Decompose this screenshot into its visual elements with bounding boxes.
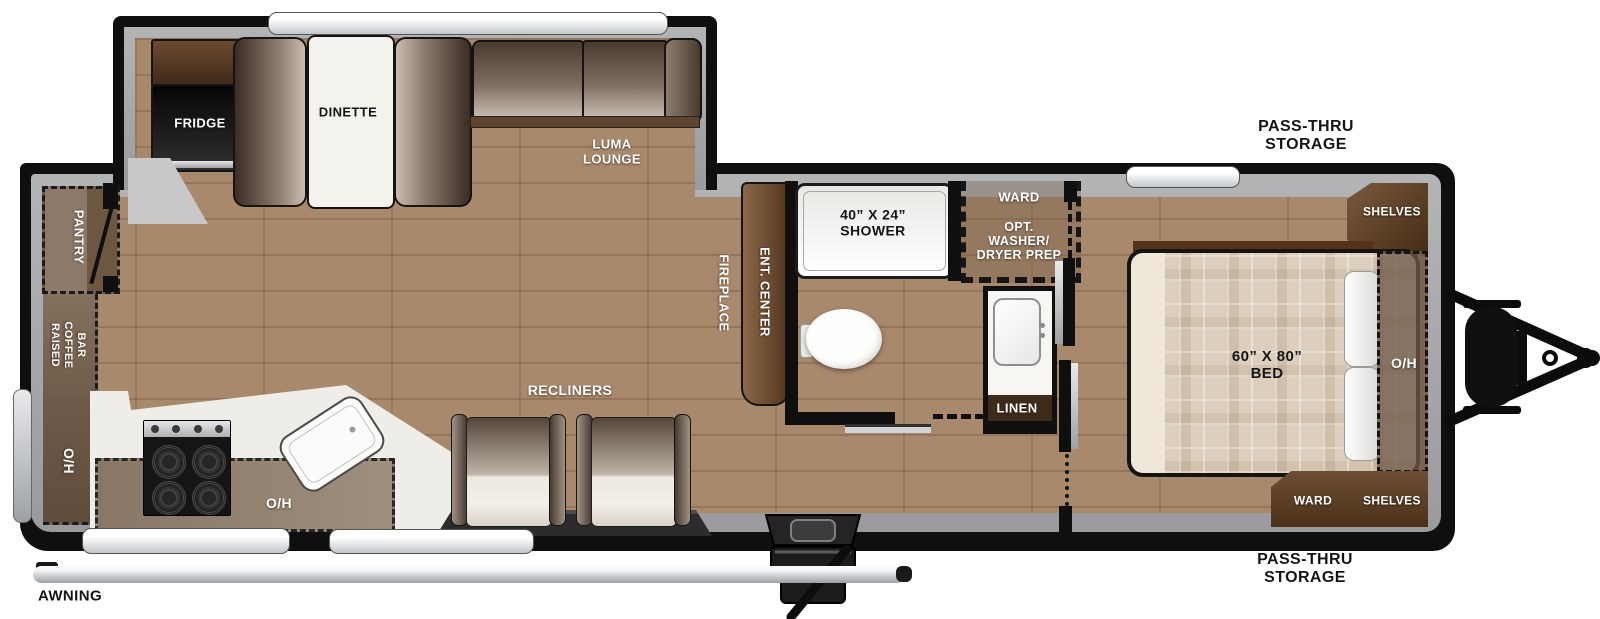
recliner-seat [466, 417, 552, 527]
pass-thru-storage-label-bottom: PASS-THRU STORAGE [1257, 551, 1353, 587]
bedroom-wall-stub-top [1064, 181, 1077, 202]
rear-wall-window [13, 389, 32, 523]
shower-right-wall [948, 181, 961, 281]
awning-end-nub [896, 566, 912, 582]
trailer-hitch [1444, 233, 1600, 485]
recliner-seat [591, 417, 677, 527]
awning-label: AWNING [38, 589, 102, 606]
faucet-icon [1040, 333, 1045, 338]
recliner-right-arm [674, 414, 691, 526]
pantry-label: PANTRY [71, 210, 86, 264]
pass-thru-top-line1: PASS-THRU [1258, 118, 1354, 136]
luma-lounge-armrest [664, 38, 702, 124]
linen-label: LINEN [997, 402, 1038, 417]
luma-lounge-label-line1: LUMA [583, 137, 641, 152]
dinette-bench-right [394, 37, 472, 207]
luma-lounge-label-line2: LOUNGE [583, 152, 641, 167]
awning-roller [33, 566, 905, 583]
vanity-base-wall [983, 426, 1057, 434]
washer-dryer-label-line2: WASHER/ [977, 234, 1062, 248]
overhead-kitchen-label: O/H [266, 496, 292, 512]
shelves-rear-label: SHELVES [1363, 494, 1421, 507]
washer-dryer-label-line3: DRYER PREP [977, 248, 1062, 262]
stove-burner [152, 445, 186, 479]
stove [143, 420, 231, 516]
faucet-icon [1040, 323, 1045, 328]
bed-size-label: 60” X 80” [1232, 349, 1302, 366]
recliner-right-arm [549, 414, 566, 526]
raised-coffee-bar-word2: COFFEE [62, 321, 74, 368]
bedroom-wall-dashed [1068, 202, 1072, 258]
pass-thru-bottom-line2: STORAGE [1257, 569, 1353, 587]
fireplace-label: FIREPLACE [716, 254, 731, 331]
luma-lounge-base [470, 116, 700, 128]
ward-rear-label: WARD [1294, 494, 1332, 507]
dinette-bench-left [233, 37, 307, 207]
raised-coffee-bar-word3: BAR [75, 332, 87, 357]
pantry-door-jamb-top [103, 183, 118, 209]
bathroom-door-dashes [933, 414, 985, 419]
bathroom-sink [993, 298, 1041, 366]
luma-lounge-label: LUMA LOUNGE [583, 137, 641, 166]
bedroom-wall-stub-bottom [1059, 506, 1072, 532]
ward-label: WARD [998, 191, 1039, 206]
overhead-left-label: O/H [60, 448, 76, 474]
washer-dryer-label: OPT. WASHER/ DRYER PREP [977, 220, 1062, 262]
pantry-door-jamb-bottom [103, 276, 118, 292]
bed-word-label: BED [1232, 366, 1302, 383]
raised-coffee-bar-word1: RAISED [49, 323, 61, 367]
toilet [806, 309, 882, 369]
pass-thru-storage-label-top: PASS-THRU STORAGE [1258, 118, 1354, 154]
floorplan-canvas: PANTRY RAISED COFFEE BAR O/H O/H FRIDGE … [0, 0, 1600, 619]
entry-steps [757, 505, 869, 619]
stove-knob [194, 425, 202, 433]
bedroom-door-leaf [1055, 261, 1063, 344]
exterior-window [329, 529, 534, 554]
pass-thru-top-line2: STORAGE [1258, 136, 1354, 154]
bedroom-door-leaf [1071, 363, 1078, 449]
stove-knob [172, 425, 180, 433]
stove-burner [192, 481, 226, 515]
slideout-window [268, 12, 668, 35]
ent-center-label: ENT. CENTER [757, 247, 772, 337]
stove-burner [152, 481, 186, 515]
shower-word-label: SHOWER [840, 223, 906, 239]
pass-thru-bottom-line1: PASS-THRU [1257, 551, 1353, 569]
luma-lounge-seat-right [582, 40, 668, 122]
stove-knob [151, 425, 159, 433]
shower-size-label: 40” X 24” [840, 207, 906, 223]
dinette-label: DINETTE [319, 106, 377, 121]
stove-control-strip [144, 421, 230, 437]
pillow [1344, 367, 1380, 461]
bedroom-wall-dotted [1065, 454, 1069, 506]
shower-label: 40” X 24” SHOWER [840, 207, 906, 238]
bedroom-wall-mid2 [1059, 360, 1071, 452]
stove-knob [215, 425, 223, 433]
fridge-label: FRIDGE [174, 117, 226, 132]
recliners-label: RECLINERS [528, 383, 613, 399]
washer-dryer-label-line1: OPT. [977, 220, 1062, 234]
dinette-table [307, 35, 395, 209]
bedroom-window [1126, 166, 1240, 188]
luma-lounge-seat-left [472, 40, 584, 122]
bathroom-door-leaf [845, 424, 931, 433]
stove-burner [192, 445, 226, 479]
shelves-front-label: SHELVES [1363, 205, 1421, 218]
exterior-window [82, 528, 290, 554]
bedroom-wall-mid1 [1063, 258, 1075, 346]
bed-label: 60” X 80” BED [1232, 349, 1302, 383]
overhead-bed-label: O/H [1391, 356, 1417, 372]
pillow [1344, 271, 1380, 367]
